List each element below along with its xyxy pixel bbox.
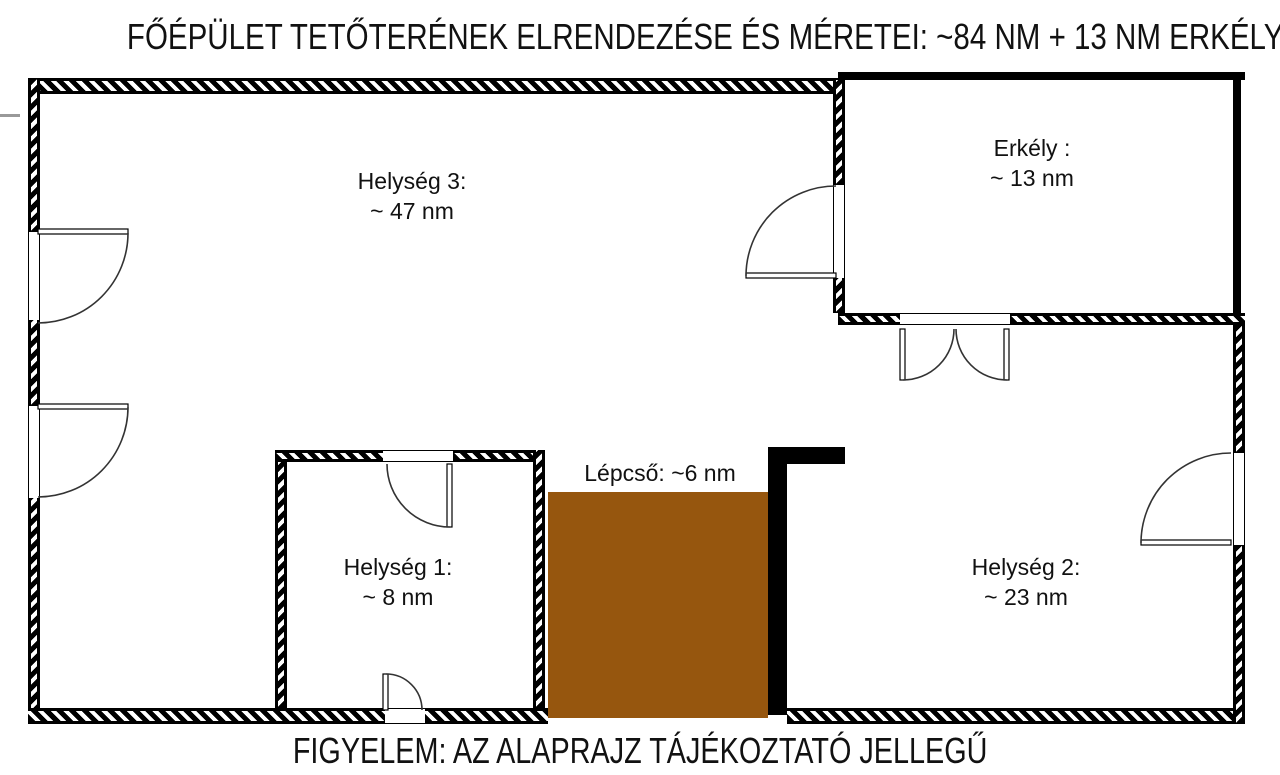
room2-area: ~ 23 nm	[972, 582, 1081, 612]
stairs-text: Lépcső: ~6 nm	[584, 458, 736, 488]
room2-label: Helység 2: ~ 23 nm	[972, 552, 1081, 612]
double-door-balcony-icon	[900, 329, 1009, 380]
wall-right-upper	[1233, 325, 1245, 453]
room1-label: Helység 1: ~ 8 nm	[344, 552, 453, 612]
door-opening-divider	[833, 185, 845, 278]
door-opening-balcony	[900, 313, 1010, 325]
divider-wall-lower	[833, 278, 845, 313]
wall-left-lower	[28, 498, 40, 724]
wall-bottom-left	[28, 708, 385, 724]
room3-name: Helység 3:	[358, 166, 467, 196]
room2-name: Helység 2:	[972, 552, 1081, 582]
room3-area: ~ 47 nm	[358, 196, 467, 226]
stair-wall-vertical	[768, 447, 787, 715]
door-divider-icon	[746, 186, 836, 278]
wall-bottom-right	[787, 708, 1245, 724]
plan-title: FŐÉPÜLET TETŐTERÉNEK ELRENDEZÉSE ÉS MÉRE…	[0, 16, 1280, 58]
door-opening-room1-top	[383, 450, 453, 462]
room1-area: ~ 8 nm	[344, 582, 453, 612]
balcony-wall-right	[1233, 72, 1241, 325]
door-opening-bottom	[385, 708, 425, 724]
wall-top	[28, 78, 843, 94]
plan-footer: FIGYELEM: AZ ALAPRAJZ TÁJÉKOZTATÓ JELLEG…	[0, 730, 1280, 772]
door-left-upper-icon	[38, 229, 128, 323]
room1-wall-top-right	[453, 450, 545, 462]
door-right-icon	[1141, 453, 1231, 545]
door-bottom-small-icon	[383, 674, 422, 710]
room1-wall-left	[275, 450, 287, 708]
balcony-name: Erkély :	[990, 133, 1074, 163]
reference-tick	[0, 114, 20, 117]
stair-wall-horizontal	[768, 447, 845, 464]
balcony-label: Erkély : ~ 13 nm	[990, 133, 1074, 193]
wall-right-lower	[1233, 545, 1245, 724]
room1-wall-top-left	[275, 450, 383, 462]
door-opening-right	[1233, 453, 1245, 545]
divider-wall-upper	[833, 80, 845, 185]
stairs-label: Lépcső: ~6 nm	[584, 458, 736, 488]
plan-title-text: FŐÉPÜLET TETŐTERÉNEK ELRENDEZÉSE ÉS MÉRE…	[127, 16, 1280, 58]
balcony-wall-bottom-right	[1010, 313, 1245, 325]
stairs-area	[548, 492, 768, 718]
plan-footer-text: FIGYELEM: AZ ALAPRAJZ TÁJÉKOZTATÓ JELLEG…	[293, 730, 988, 772]
wall-bottom-center	[425, 708, 548, 724]
room1-name: Helység 1:	[344, 552, 453, 582]
balcony-wall-bottom-left	[838, 313, 900, 325]
room3-label: Helység 3: ~ 47 nm	[358, 166, 467, 226]
floor-plan: FŐÉPÜLET TETŐTERÉNEK ELRENDEZÉSE ÉS MÉRE…	[0, 0, 1280, 775]
wall-left-upper	[28, 78, 40, 232]
door-opening-left-upper	[28, 232, 40, 320]
door-left-lower-icon	[38, 404, 128, 497]
wall-left-middle	[28, 320, 40, 406]
door-room1-top-icon	[387, 464, 452, 527]
door-opening-left-lower	[28, 406, 40, 498]
balcony-area: ~ 13 nm	[990, 163, 1074, 193]
room1-wall-right	[533, 450, 545, 708]
balcony-wall-top	[838, 72, 1245, 80]
